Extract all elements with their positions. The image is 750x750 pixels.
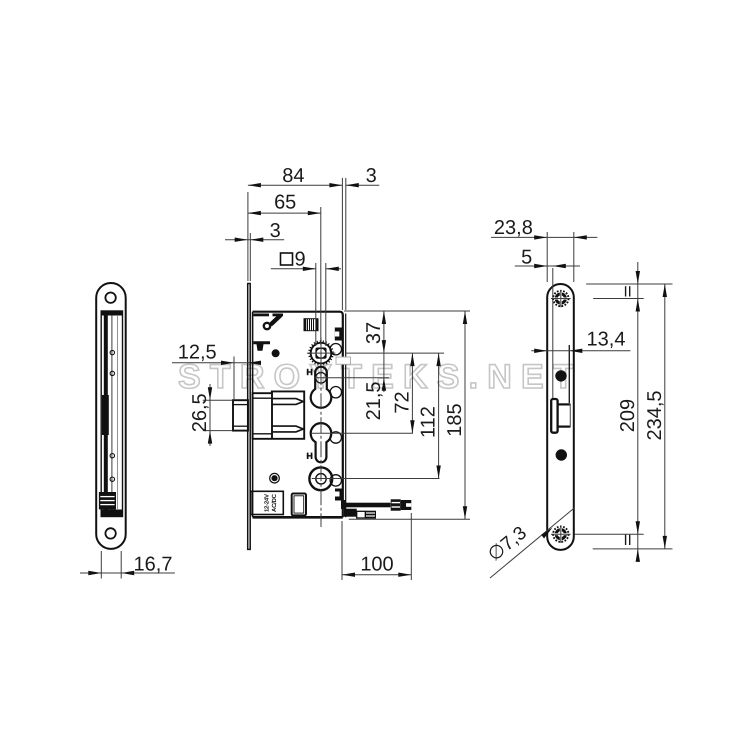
svg-text:II: II (624, 284, 632, 301)
svg-text:13,4: 13,4 (587, 329, 626, 351)
svg-text:II: II (624, 532, 632, 549)
svg-text:16,7: 16,7 (134, 554, 173, 576)
svg-text:65: 65 (274, 192, 296, 214)
svg-text:84: 84 (282, 165, 304, 187)
svg-text:3: 3 (366, 165, 377, 187)
svg-text:23,8: 23,8 (494, 217, 533, 239)
svg-text:3: 3 (270, 220, 281, 242)
svg-text:185: 185 (444, 403, 466, 436)
svg-text:37: 37 (363, 322, 385, 344)
svg-text:12,5: 12,5 (178, 342, 217, 364)
svg-text:9: 9 (295, 249, 306, 271)
svg-text:234,5: 234,5 (644, 390, 666, 440)
svg-text:100: 100 (360, 554, 393, 576)
svg-text:21,5: 21,5 (363, 381, 385, 420)
svg-text:AC/DC: AC/DC (271, 493, 278, 512)
svg-text:5: 5 (521, 247, 532, 269)
svg-text:72: 72 (391, 391, 413, 413)
svg-text:12-24V: 12-24V (263, 494, 270, 512)
svg-text:26,5: 26,5 (189, 393, 211, 432)
svg-text:112: 112 (418, 406, 440, 438)
svg-text:209: 209 (617, 399, 639, 432)
